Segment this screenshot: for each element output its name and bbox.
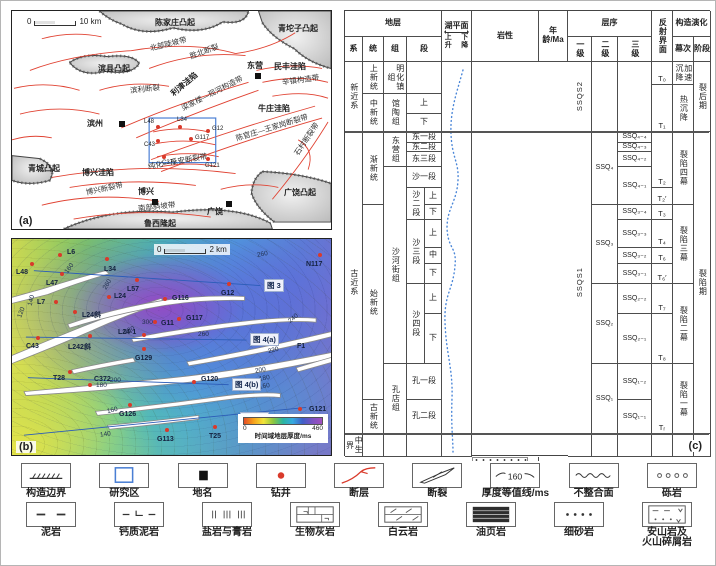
strat-header-cell: 组 [384, 37, 407, 62]
legend-label: 钻井 [271, 489, 291, 500]
panel-c-tag: (c) [687, 440, 704, 452]
legend-label: 地名 [193, 489, 213, 500]
legend-label: 盐岩与膏岩 [202, 528, 252, 539]
strat-cell: SSQ₃ [592, 205, 618, 284]
well-label: L24 [114, 293, 126, 300]
well-label: G129 [135, 355, 152, 362]
panel-b-scalebar: 0 2 km [154, 244, 230, 255]
thickness-contour-icon: 160 [490, 463, 540, 488]
lake-level-curve [442, 62, 472, 457]
well-marker [68, 370, 72, 374]
place-name-marker [119, 121, 125, 127]
well-label: G121 [205, 163, 220, 169]
strat-cell: Tᵣ [652, 364, 673, 434]
strat-cell: 裂陷期 [694, 132, 711, 434]
legend-label: 白云岩 [388, 528, 418, 539]
contour-value-label: 180 [96, 382, 107, 389]
calc-mudstone-icon [114, 502, 164, 527]
well-label: G12 [221, 290, 234, 297]
strat-cell: 下 [407, 114, 442, 132]
contour-value-label: 300 [142, 319, 153, 326]
well-marker [60, 272, 64, 276]
well-marker [227, 282, 231, 286]
strat-cell: 上 [425, 284, 442, 314]
scale-zero: 0 [27, 17, 31, 26]
well-marker [177, 317, 181, 321]
strat-cell: 热沉降 [673, 85, 694, 132]
panel-b-tag: (b) [16, 441, 36, 453]
well-label: L6 [67, 249, 75, 256]
strat-cell: 裂后期 [694, 62, 711, 132]
well-marker [192, 380, 196, 384]
strat-cell: SSQ₂ [592, 284, 618, 364]
well-marker [156, 139, 160, 143]
strat-cell [568, 434, 592, 457]
legend-label: 泥岩 [41, 528, 61, 539]
sequence-boundary-line [345, 131, 709, 133]
legend-label: 断裂 [427, 489, 447, 500]
strat-cell: T₂ [652, 132, 673, 188]
map-region-label: 青城凸起 [28, 163, 60, 174]
legend-item: 断层 [320, 463, 398, 500]
legend-item: 断裂 [398, 463, 476, 500]
section-line-label: 图 4(a) [250, 333, 279, 346]
well-marker [135, 278, 139, 282]
legend-label: 安山岩及 火山碎屑岩 [642, 528, 692, 549]
well-marker [54, 300, 58, 304]
well-marker [107, 295, 111, 299]
legend-item: 研究区 [85, 463, 163, 500]
strat-cell: 孔店组 [384, 364, 407, 434]
lake-level-header: 湖平面 [445, 22, 469, 31]
strat-cell: T₆ [652, 248, 673, 264]
strat-cell: 东二段 [407, 143, 442, 152]
conglomerate-icon [647, 463, 697, 488]
section-lines [24, 271, 306, 435]
legend-item: 盐岩与膏岩 [183, 502, 271, 539]
strat-cell: 下 [425, 205, 442, 220]
well-marker [162, 155, 166, 159]
well-label: L242斜 [68, 342, 91, 352]
strat-cell: SSQ₃₋₃ [618, 220, 652, 248]
strat-cell: 沙一段 [407, 167, 442, 188]
strat-cell: SSQ₂₋₁ [618, 314, 652, 364]
well-marker [206, 129, 210, 133]
well-label: G116 [172, 295, 189, 302]
panel-a-structural-map: 0 10 km 陈家庄凸起青坨子凸起北部陡坡带胜北断裂民丰洼陷辛镇构造带滨县凸起… [11, 10, 332, 230]
well-marker [142, 347, 146, 351]
well-label: G117 [195, 135, 209, 141]
strat-header-cell: 阶段 [694, 37, 711, 62]
well-marker [165, 428, 169, 432]
well-label: L34 [104, 266, 116, 273]
tectonic-boundary-icon [21, 463, 71, 488]
well-marker [142, 333, 146, 337]
well-marker [36, 336, 40, 340]
unconformity-icon [569, 463, 619, 488]
legend-label: 细砂岩 [564, 528, 594, 539]
legend-item: 油页岩 [447, 502, 535, 539]
strat-cell [407, 434, 442, 457]
strat-cell: 中生界 [345, 434, 363, 457]
well-label: C372 [162, 160, 176, 166]
place-name-label: 东营 [247, 60, 263, 71]
well-marker [58, 253, 62, 257]
strat-cell: SSQ₃₋₁ [618, 264, 652, 284]
map-region-label: 牛庄洼陷 [258, 103, 290, 114]
well-label: G117 [186, 315, 203, 322]
strat-cell: SSQ₁₋₁ [618, 400, 652, 434]
strat-cell [652, 434, 673, 457]
strat-cell: 下 [425, 314, 442, 364]
strat-cell: 裂陷三幕 [673, 205, 694, 284]
map-region-label: 陈家庄凸起 [155, 17, 195, 28]
well-marker [213, 425, 217, 429]
well-label: C43 [144, 142, 155, 148]
well-label: G126 [119, 411, 136, 418]
panel-a-scalebar: 0 10 km [24, 16, 104, 27]
strat-cell: SSQS2 [568, 62, 592, 132]
well-marker [153, 320, 157, 324]
strat-cell: 下 [425, 264, 442, 284]
strat-cell: 裂陷一幕 [673, 364, 694, 434]
well-label: G12 [212, 126, 223, 132]
section-line-label: 图 4(b) [232, 378, 261, 391]
legend-item: 钙质泥岩 [95, 502, 183, 539]
strat-cell: SSQ₃₋₄ [618, 205, 652, 220]
strat-cell: 中新统 [363, 94, 384, 132]
strat-cell: 孔一段 [407, 364, 442, 400]
well-marker [88, 383, 92, 387]
legend-item: 生物灰岩 [271, 502, 359, 539]
strat-header-cell: 层序 [568, 11, 652, 37]
panel-a-tag: (a) [16, 215, 35, 227]
figure-root: 0 10 km 陈家庄凸起青坨子凸起北部陡坡带胜北断裂民丰洼陷辛镇构造带滨县凸起… [0, 0, 716, 566]
well-label: L7 [37, 299, 45, 306]
legend-row-2: 泥岩钙质泥岩盐岩与膏岩生物灰岩白云岩油页岩细砂岩安山岩及 火山碎屑岩 [1, 500, 716, 549]
legend-item: 地名 [163, 463, 241, 500]
strat-cell: 古新统 [363, 400, 384, 434]
strat-header-cell: 湖平面上升下降 [442, 11, 472, 62]
strat-cell: 渐新统 [363, 132, 384, 205]
well-marker [206, 157, 210, 161]
svg-text:160: 160 [508, 471, 523, 481]
panel-b-thickness-map: 0 2 km L48L6L34N117L47L57G12L7L24G116L24… [11, 238, 332, 456]
strat-cell: T₁ [652, 85, 673, 132]
strat-cell: T₄ [652, 220, 673, 248]
andesite-volcaniclastic-icon [642, 502, 692, 527]
well-icon [256, 463, 306, 488]
strat-cell: 东营组 [384, 132, 407, 167]
strat-cell [363, 434, 384, 457]
well-marker [178, 125, 182, 129]
legend-label: 油页岩 [476, 528, 506, 539]
strat-cell: 上新统 [363, 62, 384, 94]
place-name-marker [255, 73, 261, 79]
strat-cell: 沙河街组 [384, 167, 407, 364]
strat-cell: T₃ [652, 205, 673, 220]
strat-header-cell: 构造演化 [673, 11, 711, 37]
well-label: G120 [201, 376, 218, 383]
place-name-label: 博兴 [138, 186, 154, 197]
contour-value-label: 200 [110, 377, 121, 384]
strat-cell: SSQ₁ [592, 364, 618, 434]
strat-cell: 古近系 [345, 132, 363, 434]
strat-cell [407, 62, 442, 94]
strat-cell: 明化镇组 [384, 62, 407, 94]
strat-cell: 中 [425, 248, 442, 264]
place-name-marker [226, 201, 232, 207]
strat-cell: SSQ₃₋₂ [618, 248, 652, 264]
well-label: N117 [306, 261, 322, 268]
well-marker [128, 403, 132, 407]
strat-header-cell: 岩性 [472, 11, 539, 62]
well-marker [73, 310, 77, 314]
strat-cell: 上 [425, 188, 442, 205]
legend-item: 钻井 [242, 463, 320, 500]
strat-cell: T₈ [652, 314, 673, 364]
well-label: C43 [26, 343, 39, 350]
fault-icon [334, 463, 384, 488]
well-label: F1 [297, 343, 305, 350]
contour-value-label: 140 [100, 430, 112, 438]
well-label: L57 [127, 286, 139, 293]
strat-cell: SSQ₄₋₂ [618, 152, 652, 167]
rise-fall-arrow-icon [445, 32, 468, 33]
well-marker [189, 137, 193, 141]
strat-cell: SSQ₄₋₄ [618, 132, 652, 143]
well-label: L47 [46, 280, 58, 287]
well-label: T28 [53, 375, 65, 382]
well-marker [163, 297, 167, 301]
place-name-label: 广饶 [207, 206, 223, 217]
well-marker [318, 253, 322, 257]
scalebar-graphic [164, 249, 206, 254]
rise-label: 上升 [443, 34, 454, 49]
colorbar-title: 时间域地层厚度/ms [243, 433, 323, 441]
scale-distance: 2 km [209, 245, 226, 254]
map-region-label: 博兴洼陷 [82, 167, 114, 178]
colorbar-gradient [243, 417, 323, 425]
map-region-label: 滨县凸起 [98, 63, 130, 74]
colorbar-max: 460 [312, 425, 323, 433]
strat-cell: SSQ₄₋₁ [618, 167, 652, 205]
well-label: L48 [144, 119, 154, 125]
legend-item: 泥岩 [7, 502, 95, 539]
strat-header-cell: 二级 [592, 37, 618, 62]
strat-header-cell: 年龄/Ma [539, 11, 568, 62]
contour-value-label: 260 [198, 331, 209, 338]
strat-cell: 始新统 [363, 205, 384, 400]
strat-cell: 上 [425, 220, 442, 248]
strat-header-cell: 幕次 [673, 37, 694, 62]
bio-limestone-icon [290, 502, 340, 527]
strat-cell: 裂陷二幕 [673, 284, 694, 364]
legend-item: 砾岩 [633, 463, 711, 500]
sequence-boundary-line [345, 433, 709, 435]
strat-cell [384, 434, 407, 457]
strat-cell: 新近系 [345, 62, 363, 132]
colorbar: 0 460 时间域地层厚度/ms [238, 414, 328, 443]
well-label: C372 [94, 376, 111, 383]
legend-item: 安山岩及 火山碎屑岩 [623, 502, 711, 549]
scale-distance: 10 km [79, 17, 101, 26]
legend-item: 白云岩 [359, 502, 447, 539]
strat-cell: 东一段 [407, 132, 442, 143]
strat-header-cell: 一级 [568, 37, 592, 62]
strat-cell: 馆陶组 [384, 94, 407, 132]
legend-item: 构造边界 [7, 463, 85, 500]
legend-label: 断层 [349, 489, 369, 500]
strat-cell: 孔二段 [407, 400, 442, 434]
section-line-label: 图 3 [264, 279, 284, 292]
well-label: G113 [157, 436, 174, 443]
dolomite-icon [378, 502, 428, 527]
legend-label: 生物灰岩 [295, 528, 335, 539]
legend-label: 构造边界 [26, 489, 66, 500]
scale-zero: 0 [157, 245, 161, 254]
map-region-label: 民丰洼陷 [274, 61, 306, 72]
fall-label: 下降 [460, 34, 471, 49]
legend-item: 不整合面 [555, 463, 633, 500]
strat-cell [618, 434, 652, 457]
legend-label: 钙质泥岩 [119, 528, 159, 539]
legend-row-1: 构造边界研究区地名钻井断层断裂160厚度等值线/ms不整合面砾岩 [1, 461, 716, 500]
strat-header-cell: 地层 [345, 11, 442, 37]
strat-header-cell: 段 [407, 37, 442, 62]
strat-cell: SSQS1 [568, 132, 592, 434]
well-label: L24斜 [82, 310, 101, 320]
oil-shale-icon [466, 502, 516, 527]
strat-cell [618, 62, 652, 132]
strat-cell: SSQ₄ [592, 132, 618, 205]
strat-header-cell: 系 [345, 37, 363, 62]
well-marker [298, 407, 302, 411]
salt-gypsum-icon [202, 502, 252, 527]
well-label: T25 [209, 433, 221, 440]
well-label: G121 [309, 406, 326, 413]
well-marker [105, 257, 109, 261]
strat-header-cell: 反射界面 [652, 11, 673, 62]
place-name-icon [178, 463, 228, 488]
strat-cell: 上 [407, 94, 442, 114]
strat-cell: SSQ₂₋₂ [618, 284, 652, 314]
place-name-marker [152, 199, 158, 205]
legend-label: 研究区 [109, 489, 139, 500]
legend: 构造边界研究区地名钻井断层断裂160厚度等值线/ms不整合面砾岩 泥岩钙质泥岩盐… [1, 461, 716, 565]
legend-label: 厚度等值线/ms [482, 489, 549, 500]
well-label: L24-1 [118, 329, 136, 336]
strat-cell [592, 434, 618, 457]
strat-cell: 沙二段 [407, 188, 425, 220]
strat-cell: 沙四段 [407, 284, 425, 364]
legend-item: 细砂岩 [535, 502, 623, 539]
strat-cell: T₂′ [652, 188, 673, 205]
strat-header-cell: 三级 [618, 37, 652, 62]
scalebar-graphic [34, 21, 76, 26]
map-region-label: 广饶凸起 [284, 187, 316, 198]
legend-label: 不整合面 [574, 489, 614, 500]
strat-cell: T₇ [652, 284, 673, 314]
map-region-label: 青坨子凸起 [278, 23, 318, 34]
well-label: G11 [161, 320, 174, 327]
mudstone-icon [26, 502, 76, 527]
well-label: L34 [177, 117, 187, 123]
strat-cell: 东三段 [407, 152, 442, 167]
fine-sandstone-icon [554, 502, 604, 527]
strat-cell: SSQ₄₋₃ [618, 143, 652, 152]
strat-cell: SSQ₁₋₂ [618, 364, 652, 400]
colorbar-min: 0 [243, 425, 247, 433]
strat-cell: T₀ [652, 62, 673, 85]
panel-c-strat-column: 地层系统组段湖平面上升下降岩性年龄/Ma层序一级二级三级反射界面构造演化幕次阶段… [344, 10, 710, 456]
legend-item: 160厚度等值线/ms [476, 463, 554, 500]
strat-header-cell: 统 [363, 37, 384, 62]
well-marker [30, 262, 34, 266]
well-label: L48 [16, 269, 28, 276]
legend-label: 砾岩 [662, 489, 682, 500]
strat-cell [442, 62, 472, 457]
fracture-icon [412, 463, 462, 488]
strat-cell: T₆′ [652, 264, 673, 284]
strat-cell [592, 62, 618, 132]
study-area-icon [99, 463, 149, 488]
strat-cell: 沙三段 [407, 220, 425, 284]
map-region-label: 鲁西隆起 [144, 218, 176, 229]
well-marker [88, 334, 92, 338]
strat-cell: 加速沉降 [673, 62, 694, 85]
strat-cell: 裂陷四幕 [673, 132, 694, 205]
place-name-label: 滨州 [87, 118, 103, 129]
well-marker [156, 125, 160, 129]
